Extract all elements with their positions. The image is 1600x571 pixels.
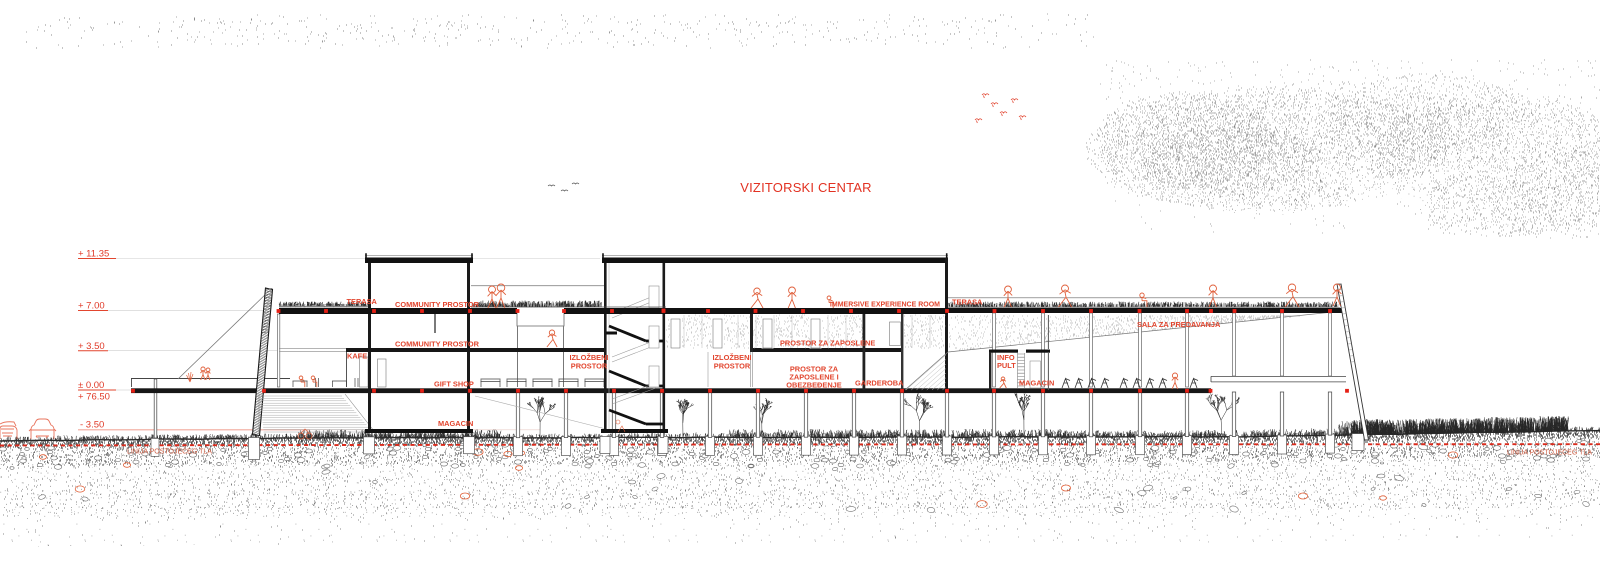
svg-text:IMMERSIVE EXPERIENCE ROOM: IMMERSIVE EXPERIENCE ROOM [830,302,940,309]
svg-text:TERASA: TERASA [347,297,378,306]
svg-text:GIFT SHOP: GIFT SHOP [434,380,474,389]
svg-text:LINIJA POSTOJEĆEG TLA: LINIJA POSTOJEĆEG TLA [127,447,212,456]
svg-text:+ 11.35: + 11.35 [78,249,109,260]
svg-text:LINIJA POSTOJEĆEG TLA: LINIJA POSTOJEĆEG TLA [1507,448,1592,457]
svg-text:KAFE: KAFE [347,352,367,361]
svg-text:PROSTOR: PROSTOR [714,362,751,371]
svg-text:VIZITORSKI CENTAR: VIZITORSKI CENTAR [740,180,872,195]
svg-text:MAGACIN: MAGACIN [1019,379,1054,388]
svg-text:SALA ZA PREDAVANJA: SALA ZA PREDAVANJA [1137,320,1221,329]
svg-text:COMMUNITY PROSTOR: COMMUNITY PROSTOR [395,300,480,309]
svg-text:GARDEROBA: GARDEROBA [855,379,904,388]
svg-text:+ 7.00: + 7.00 [78,301,105,312]
svg-text:TERASA: TERASA [952,298,983,307]
svg-text:± 0.00: ± 0.00 [78,380,104,391]
svg-text:COMMUNITY PROSTOR: COMMUNITY PROSTOR [395,340,480,349]
svg-text:PULT: PULT [997,361,1016,370]
svg-text:MAGACIN: MAGACIN [438,419,473,428]
svg-text:OBEZBEĐENJE: OBEZBEĐENJE [786,381,842,390]
svg-text:PROSTOR ZA ZAPOSLENE: PROSTOR ZA ZAPOSLENE [780,339,875,348]
svg-text:+ 3.50: + 3.50 [78,341,105,352]
svg-text:- 3.50: - 3.50 [80,420,104,431]
svg-text:+ 76.50: + 76.50 [78,392,110,403]
svg-text:PROSTOR: PROSTOR [571,362,608,371]
